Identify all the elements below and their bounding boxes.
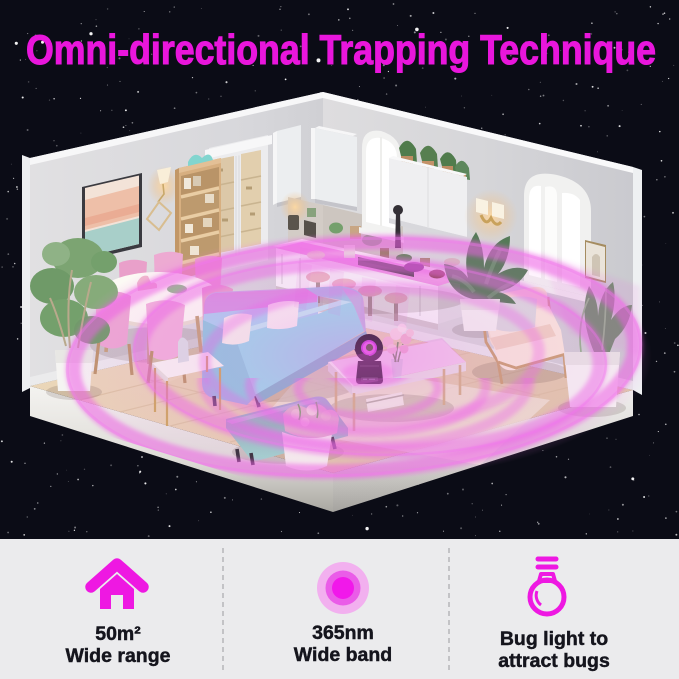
svg-text:Bug light to: Bug light to [500,628,608,650]
svg-text:Wide band: Wide band [294,644,392,666]
svg-text:Omni-directional Trapping Tech: Omni-directional Trapping Technique [26,26,656,73]
svg-text:attract bugs: attract bugs [498,650,610,672]
svg-text:365nm: 365nm [312,622,374,644]
svg-text:Wide range: Wide range [66,645,171,667]
svg-text:50m²: 50m² [95,623,141,645]
